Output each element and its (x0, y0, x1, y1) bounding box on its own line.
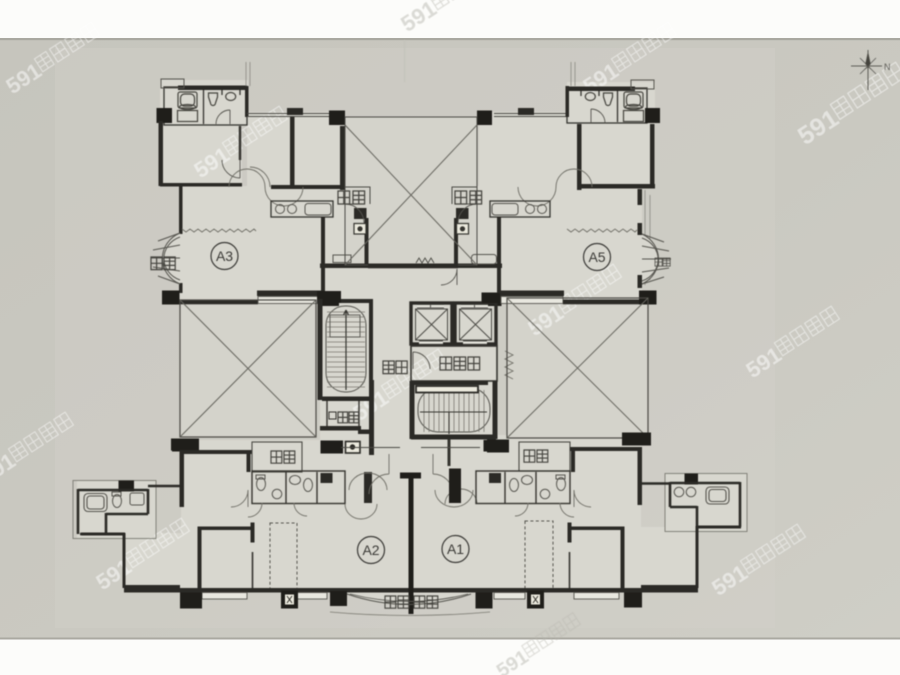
svg-text:A1: A1 (447, 541, 464, 557)
svg-text:A3: A3 (216, 248, 233, 264)
svg-text:A5: A5 (588, 249, 605, 265)
svg-text:N: N (884, 62, 891, 72)
svg-text:A2: A2 (362, 542, 379, 558)
